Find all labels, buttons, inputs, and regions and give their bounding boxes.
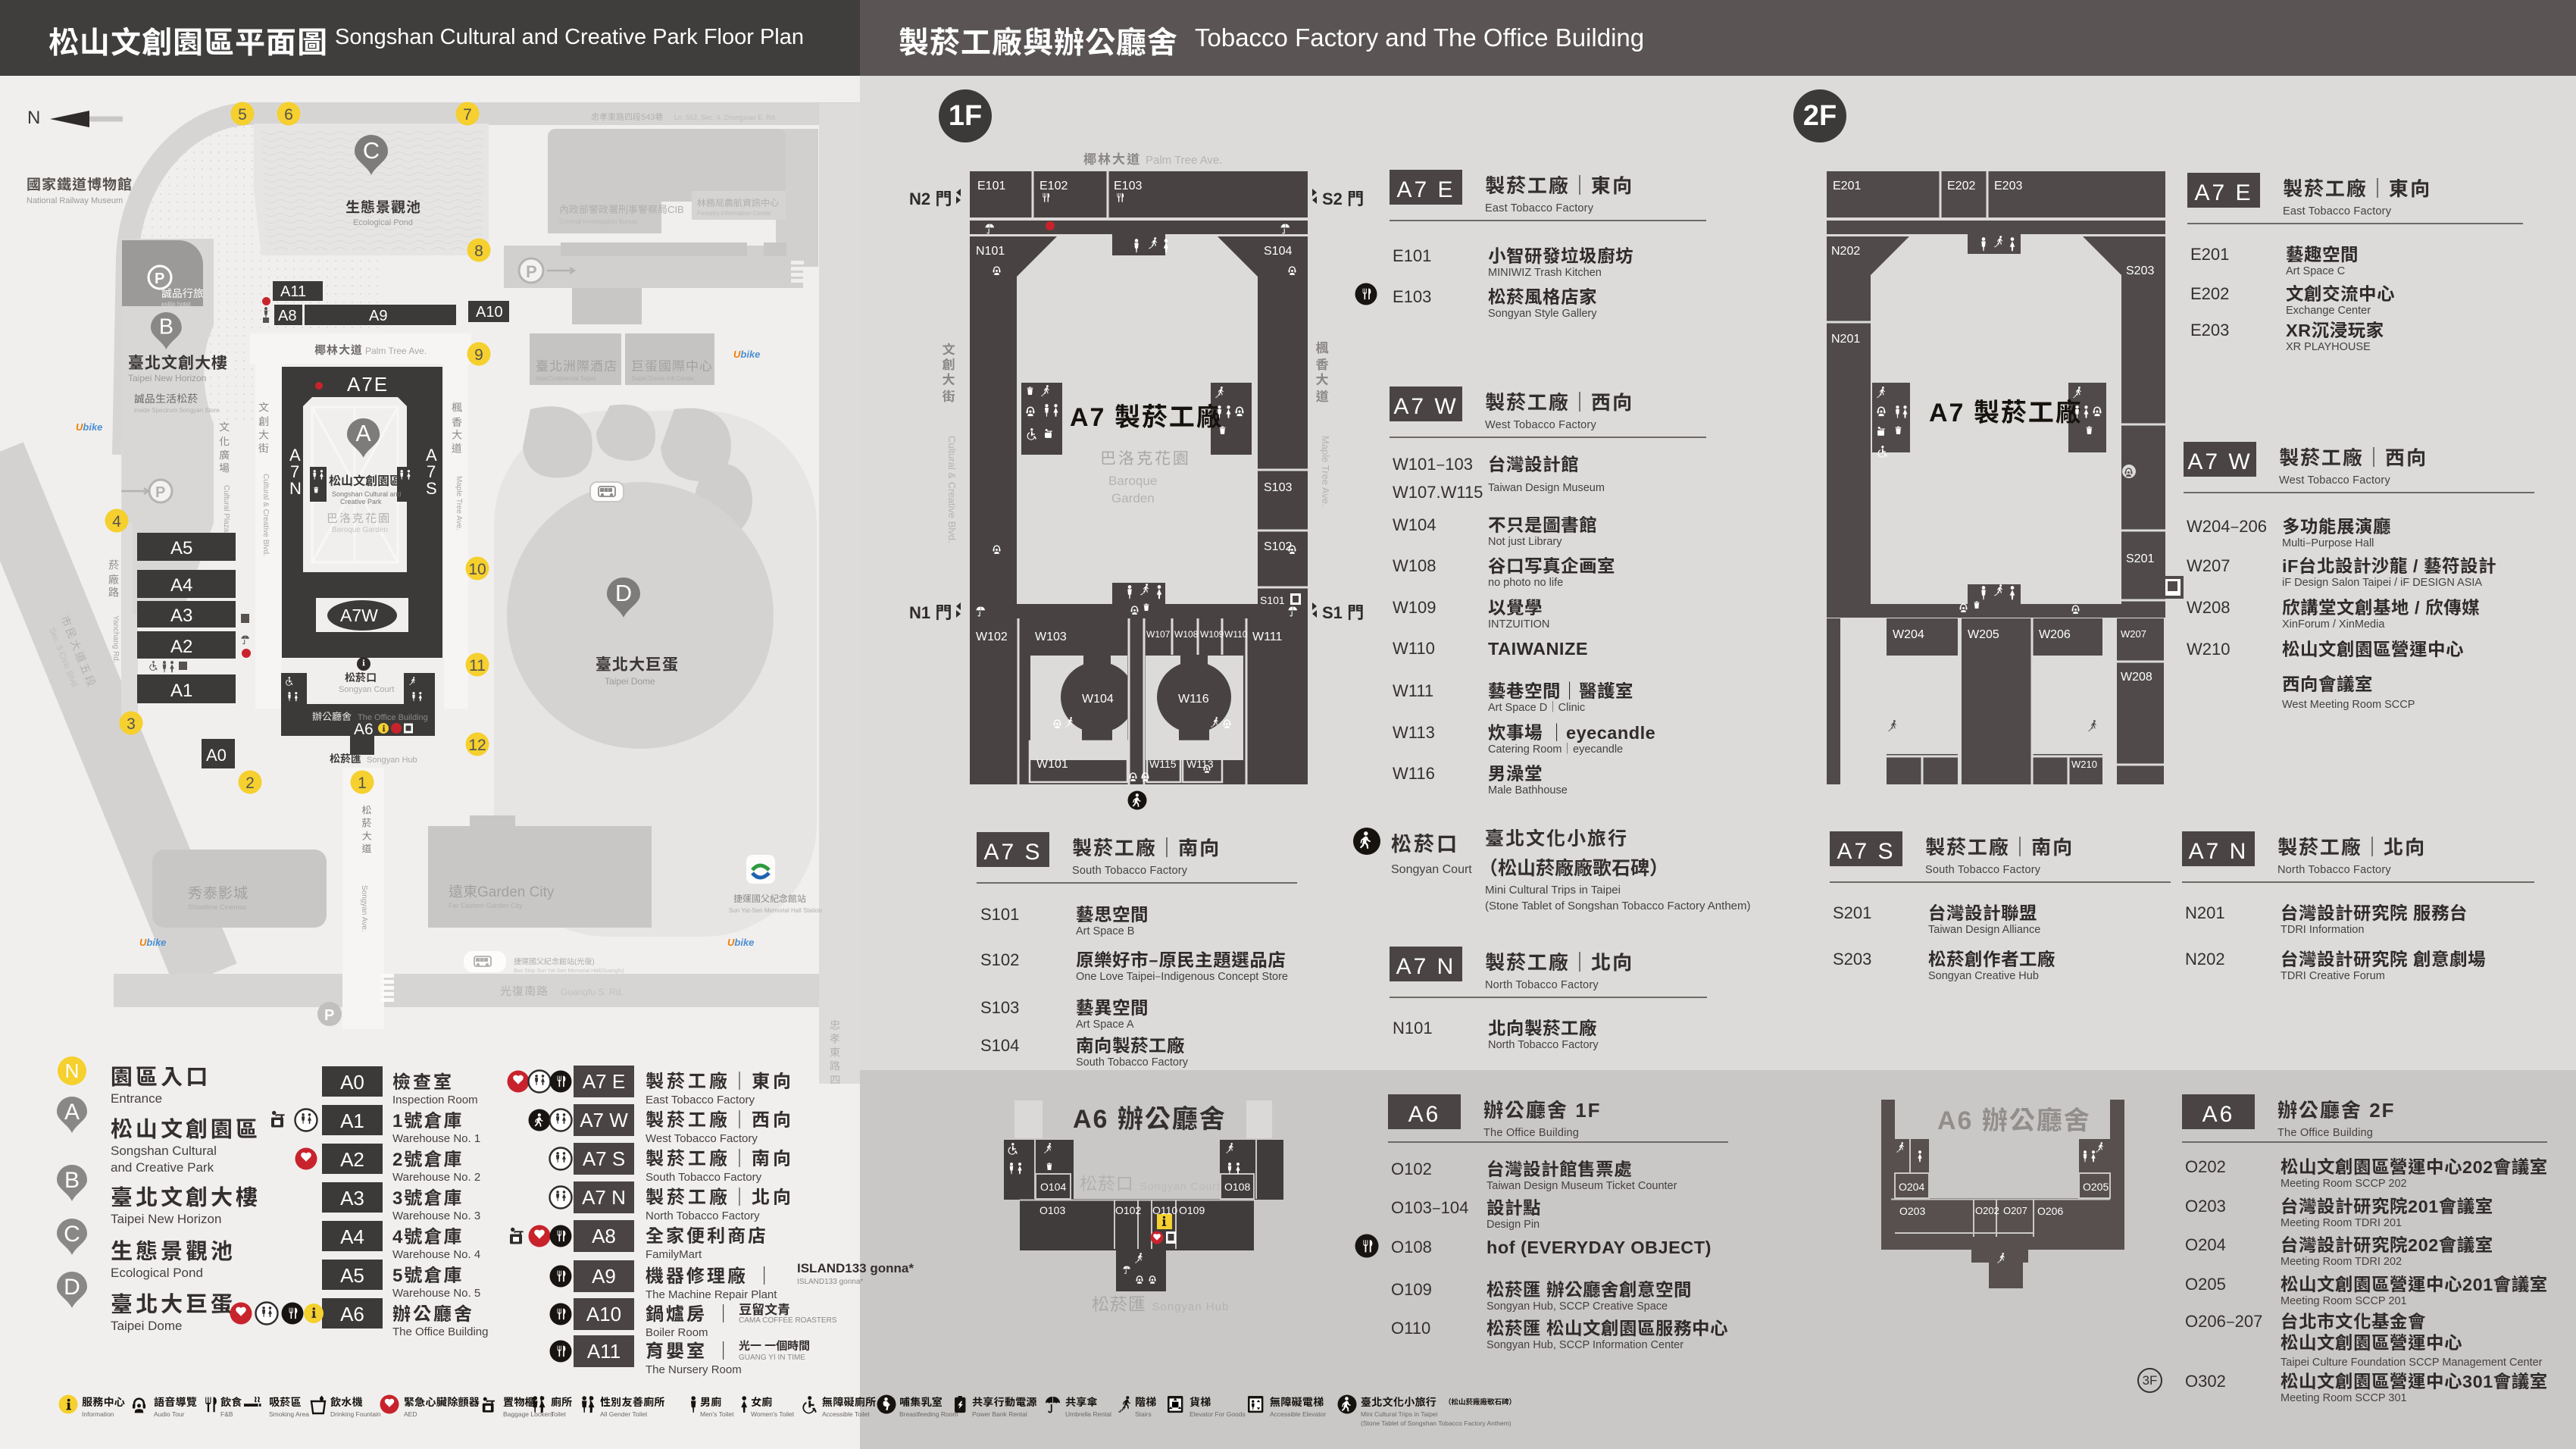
svg-text:Forestry Information Center: Forestry Information Center xyxy=(697,209,771,218)
svg-text:A7 製菸工廠: A7 製菸工廠 xyxy=(1070,396,1224,433)
svg-text:A1: A1 xyxy=(170,681,192,701)
svg-text:W101: W101 xyxy=(1036,758,1068,771)
svg-text:Cultural & Creative Blvd.: Cultural & Creative Blvd. xyxy=(261,474,273,556)
svg-text:Accessible Elevator: Accessible Elevator xyxy=(1270,1410,1326,1419)
svg-text:女廁: 女廁 xyxy=(751,1394,773,1410)
svg-text:C: C xyxy=(363,137,380,164)
svg-text:置物櫃: 置物櫃 xyxy=(503,1394,536,1410)
svg-text:E101: E101 xyxy=(977,180,1005,192)
svg-text:W102: W102 xyxy=(976,631,1008,643)
svg-text:N: N xyxy=(27,108,40,128)
svg-text:廁所: 廁所 xyxy=(551,1394,573,1410)
svg-text:文創大街: 文創大街 xyxy=(256,402,271,456)
svg-text:N101: N101 xyxy=(976,245,1005,258)
svg-text:O205: O205 xyxy=(2083,1181,2109,1193)
svg-text:S1 門: S1 門 xyxy=(1322,599,1364,624)
svg-text:A1: A1 xyxy=(340,1109,364,1132)
svg-text:A9: A9 xyxy=(592,1265,616,1288)
svg-text:貨梯: 貨梯 xyxy=(1190,1394,1211,1410)
svg-text:Far Eastern Garden City: Far Eastern Garden City xyxy=(449,900,523,910)
svg-text:Songyan Ave.: Songyan Ave. xyxy=(360,885,371,932)
svg-text:飲食: 飲食 xyxy=(220,1394,242,1410)
svg-text:A0: A0 xyxy=(206,746,227,765)
svg-text:P: P xyxy=(155,266,164,288)
svg-text:InterContinental Taipei: InterContinental Taipei xyxy=(536,374,596,383)
svg-text:Maple Tree Ave.: Maple Tree Ave. xyxy=(455,476,466,530)
svg-text:誠品生活松菸: 誠品生活松菸 xyxy=(134,391,198,406)
svg-text:5: 5 xyxy=(238,106,247,124)
svg-text:菸廠路: 菸廠路 xyxy=(106,559,121,600)
svg-text:S2 門: S2 門 xyxy=(1322,186,1364,210)
svg-text:Toilet: Toilet xyxy=(551,1410,566,1419)
svg-text:S: S xyxy=(426,479,437,498)
svg-text:W108: W108 xyxy=(1174,629,1199,640)
svg-text:3: 3 xyxy=(127,715,136,733)
svg-text:Women's Toilet: Women's Toilet xyxy=(751,1410,795,1419)
svg-text:B: B xyxy=(64,1168,80,1193)
svg-text:All Gender Toilet: All Gender Toilet xyxy=(600,1410,648,1419)
svg-text:楓香大道: 楓香大道 xyxy=(449,402,464,456)
svg-text:W206: W206 xyxy=(2039,628,2071,641)
svg-text:A4: A4 xyxy=(170,575,192,596)
svg-text:E103: E103 xyxy=(1114,180,1142,192)
svg-text:N: N xyxy=(65,1059,80,1082)
svg-text:捷運國父紀念館站(光復): 捷運國父紀念館站(光復) xyxy=(514,955,595,966)
svg-text:臺北文化小旅行: 臺北文化小旅行 xyxy=(1361,1394,1436,1410)
svg-text:W104: W104 xyxy=(1082,693,1114,706)
svg-text:A7W: A7W xyxy=(340,606,378,625)
svg-text:P: P xyxy=(155,480,165,502)
svg-text:Cultural & Creative Blvd.: Cultural & Creative Blvd. xyxy=(946,436,960,543)
svg-text:W110: W110 xyxy=(1224,629,1248,640)
svg-text:辦公廳舍: 辦公廳舍 xyxy=(312,709,352,723)
svg-text:S102: S102 xyxy=(1264,540,1292,553)
svg-text:Accessible Toilet: Accessible Toilet xyxy=(822,1410,870,1419)
svg-text:10: 10 xyxy=(468,561,486,578)
svg-text:O103: O103 xyxy=(1039,1204,1065,1216)
svg-text:eslite hotel: eslite hotel xyxy=(161,300,190,308)
svg-text:W107: W107 xyxy=(1146,629,1171,640)
svg-text:O108: O108 xyxy=(1224,1181,1250,1193)
svg-text:7: 7 xyxy=(463,106,472,124)
svg-text:無障礙廁所: 無障礙廁所 xyxy=(822,1394,877,1410)
svg-text:Garden: Garden xyxy=(1111,487,1155,506)
svg-text:Palm Tree Ave.: Palm Tree Ave. xyxy=(365,344,427,357)
svg-text:飲水機: 飲水機 xyxy=(330,1394,363,1410)
svg-text:N201: N201 xyxy=(1831,333,1860,346)
svg-text:inside Spectrum Songyan Store: inside Spectrum Songyan Store xyxy=(134,406,220,415)
svg-text:忠孝東路四段543巷: 忠孝東路四段543巷 xyxy=(591,111,663,123)
svg-text:Ubike: Ubike xyxy=(733,346,760,361)
svg-text:臺北洲際酒店: 臺北洲際酒店 xyxy=(536,355,617,374)
svg-text:Ubike: Ubike xyxy=(727,934,754,949)
svg-text:A6 辦公廳舍: A6 辦公廳舍 xyxy=(1937,1100,2091,1137)
svg-text:8: 8 xyxy=(474,243,483,260)
svg-text:6: 6 xyxy=(284,106,293,124)
svg-text:O109: O109 xyxy=(1179,1204,1205,1216)
svg-text:緊急心臟除顫器: 緊急心臟除顫器 xyxy=(404,1394,480,1410)
svg-text:N2 門: N2 門 xyxy=(909,186,952,210)
svg-text:A6 辦公廳舍: A6 辦公廳舍 xyxy=(1073,1098,1227,1135)
svg-text:Criminal Investigation Bureau: Criminal Investigation Bureau xyxy=(559,218,639,226)
svg-text:B: B xyxy=(159,315,174,340)
svg-text:松菸大道: 松菸大道 xyxy=(360,805,374,856)
svg-text:Breastfeeding Room: Breastfeeding Room xyxy=(899,1410,958,1419)
svg-text:巴洛克花園: 巴洛克花園 xyxy=(1100,446,1191,469)
svg-text:S104: S104 xyxy=(1264,245,1292,258)
svg-text:C: C xyxy=(64,1222,80,1247)
svg-text:A7 W: A7 W xyxy=(580,1109,628,1131)
svg-text:Power Bank Rental: Power Bank Rental xyxy=(972,1410,1027,1419)
svg-text:O104: O104 xyxy=(1040,1181,1066,1193)
svg-text:N1 門: N1 門 xyxy=(909,599,952,624)
svg-text:O202: O202 xyxy=(1975,1205,1999,1216)
svg-text:光復南路: 光復南路 xyxy=(500,983,549,999)
svg-text:A0: A0 xyxy=(340,1071,364,1094)
svg-text:11: 11 xyxy=(469,657,486,674)
svg-text:Mini Cultural Trips in Taipei: Mini Cultural Trips in Taipei xyxy=(1361,1410,1438,1419)
svg-text:內政部警政署刑事警察局CIB: 內政部警政署刑事警察局CIB xyxy=(559,202,684,216)
svg-text:Men's Toilet: Men's Toilet xyxy=(700,1410,734,1419)
svg-text:W207: W207 xyxy=(2121,628,2146,640)
svg-text:S103: S103 xyxy=(1264,481,1292,494)
svg-text:O204: O204 xyxy=(1899,1181,1924,1193)
svg-text:誠品行旅: 誠品行旅 xyxy=(161,286,204,301)
svg-text:O207: O207 xyxy=(2003,1205,2027,1216)
svg-text:Maple Tree Ave.: Maple Tree Ave. xyxy=(1319,436,1333,507)
svg-text:2: 2 xyxy=(245,775,255,792)
svg-text:A7E: A7E xyxy=(347,373,389,396)
svg-text:A2: A2 xyxy=(340,1148,364,1171)
svg-text:A8: A8 xyxy=(278,308,296,324)
svg-text:E201: E201 xyxy=(1833,180,1861,192)
svg-text:E202: E202 xyxy=(1947,180,1975,192)
svg-text:語音導覽: 語音導覽 xyxy=(154,1394,198,1410)
svg-text:楓香大道: 楓香大道 xyxy=(1313,341,1332,405)
svg-text:臺北文創大樓: 臺北文創大樓 xyxy=(128,351,228,374)
svg-text:A11: A11 xyxy=(280,283,306,300)
svg-text:Taipei Dome: Taipei Dome xyxy=(605,674,655,687)
svg-text:Bus Stop Sun Yat-Sen Memorial: Bus Stop Sun Yat-Sen Memorial Hall(Guang… xyxy=(514,967,624,975)
svg-text:松菸匯 Songyan Hub: 松菸匯 Songyan Hub xyxy=(1092,1290,1229,1316)
svg-text:A8: A8 xyxy=(592,1225,616,1247)
svg-text:W103: W103 xyxy=(1035,631,1067,643)
svg-text:Yanchang Rd.: Yanchang Rd. xyxy=(111,615,123,663)
svg-text:P: P xyxy=(526,258,537,283)
svg-text:O206: O206 xyxy=(2037,1205,2063,1217)
svg-text:A10: A10 xyxy=(586,1303,621,1325)
svg-text:Sun Yat-Sen Memorial Hall Stat: Sun Yat-Sen Memorial Hall Station xyxy=(729,906,822,915)
svg-text:(Stone Tablet of Songshan Toba: (Stone Tablet of Songshan Tobacco Factor… xyxy=(1361,1419,1512,1428)
svg-text:階梯: 階梯 xyxy=(1135,1394,1157,1410)
svg-text:文創大街: 文創大街 xyxy=(939,341,958,405)
svg-text:椰林大道: 椰林大道 xyxy=(314,342,363,358)
svg-text:共享行動電源: 共享行動電源 xyxy=(972,1394,1037,1410)
svg-text:松菸匯: 松菸匯 xyxy=(330,751,361,766)
svg-text:W210: W210 xyxy=(2071,759,2097,770)
svg-text:A10: A10 xyxy=(476,304,503,321)
svg-text:A5: A5 xyxy=(170,538,192,559)
svg-text:吸菸區: 吸菸區 xyxy=(269,1394,302,1410)
svg-text:A6: A6 xyxy=(354,721,374,738)
svg-text:Elevator For Goods: Elevator For Goods xyxy=(1190,1410,1246,1419)
svg-text:Showtime Cinemas: Showtime Cinemas xyxy=(188,902,247,912)
svg-text:Baroque Garden: Baroque Garden xyxy=(332,523,388,534)
svg-text:1: 1 xyxy=(358,775,367,792)
svg-text:巨蛋國際中心: 巨蛋國際中心 xyxy=(631,355,713,374)
svg-text:Ubike: Ubike xyxy=(139,934,166,949)
svg-text:林務局農航資訊中心: 林務局農航資訊中心 xyxy=(697,196,780,209)
svg-text:A3: A3 xyxy=(340,1187,364,1210)
svg-text:S203: S203 xyxy=(2126,264,2154,277)
svg-text:臺北大巨蛋: 臺北大巨蛋 xyxy=(596,653,679,675)
svg-text:Smoking Area: Smoking Area xyxy=(269,1410,309,1419)
svg-text:P: P xyxy=(324,1003,334,1025)
svg-text:4: 4 xyxy=(112,513,121,530)
svg-text:忠孝東路四段: 忠孝東路四段 xyxy=(827,1019,843,1084)
svg-text:N: N xyxy=(289,479,302,498)
svg-text:性別友善廁所: 性別友善廁所 xyxy=(600,1394,665,1410)
svg-text:A5: A5 xyxy=(340,1264,364,1287)
svg-text:12: 12 xyxy=(468,737,486,754)
svg-text:共享傘: 共享傘 xyxy=(1065,1394,1098,1410)
svg-text:E102: E102 xyxy=(1039,180,1068,192)
svg-text:男廁: 男廁 xyxy=(700,1394,722,1410)
svg-text:A6: A6 xyxy=(340,1303,364,1325)
svg-text:Songyan Court: Songyan Court xyxy=(339,683,394,695)
svg-text:D: D xyxy=(615,580,632,606)
svg-text:S101: S101 xyxy=(1260,594,1285,606)
svg-text:Cultural Plaza: Cultural Plaza xyxy=(222,485,233,533)
svg-text:W208: W208 xyxy=(2121,671,2152,684)
svg-text:W116: W116 xyxy=(1178,693,1209,706)
svg-text:Creative Park: Creative Park xyxy=(340,496,382,506)
svg-text:W111: W111 xyxy=(1252,631,1283,643)
svg-text:A7 N: A7 N xyxy=(582,1186,626,1209)
svg-text:Ubike: Ubike xyxy=(76,419,102,433)
svg-text:A9: A9 xyxy=(369,308,387,324)
svg-text:Drinking Fountain: Drinking Fountain xyxy=(330,1410,381,1419)
svg-text:Umbrella Rental: Umbrella Rental xyxy=(1065,1410,1111,1419)
svg-text:F&B: F&B xyxy=(220,1410,233,1419)
svg-text:Guangfu S. Rd.: Guangfu S. Rd. xyxy=(561,985,624,998)
svg-text:生態景觀池: 生態景觀池 xyxy=(345,196,421,217)
svg-text:捷運國父紀念館站: 捷運國父紀念館站 xyxy=(733,892,806,905)
svg-text:A3: A3 xyxy=(170,606,192,626)
svg-text:A11: A11 xyxy=(587,1340,621,1363)
svg-text:松山文創園區: 松山文創園區 xyxy=(329,471,402,489)
svg-text:椰林大道: 椰林大道 xyxy=(1083,149,1141,167)
svg-text:A2: A2 xyxy=(170,637,192,657)
svg-text:無障礙電梯: 無障礙電梯 xyxy=(1270,1394,1324,1410)
svg-text:A: A xyxy=(64,1100,80,1125)
svg-text:（松山菸廠廠歌石碑）: （松山菸廠廠歌石碑） xyxy=(1444,1396,1516,1407)
svg-text:秀泰影城: 秀泰影城 xyxy=(188,882,249,903)
svg-text:A7 E: A7 E xyxy=(583,1070,625,1093)
svg-text:AED: AED xyxy=(404,1410,417,1419)
svg-text:Taipei New Horizon: Taipei New Horizon xyxy=(128,371,206,384)
svg-text:國家鐵道博物館: 國家鐵道博物館 xyxy=(27,174,133,194)
svg-text:W204: W204 xyxy=(1893,628,1924,641)
svg-text:A7 製菸工廠: A7 製菸工廠 xyxy=(1929,392,2083,429)
svg-text:Stairs: Stairs xyxy=(1135,1410,1152,1419)
svg-text:A4: A4 xyxy=(340,1225,364,1248)
svg-text:National Railway Museum: National Railway Museum xyxy=(27,194,123,206)
svg-text:文化廣場: 文化廣場 xyxy=(217,421,232,476)
svg-text:N202: N202 xyxy=(1831,245,1860,258)
svg-text:S201: S201 xyxy=(2126,552,2154,565)
svg-text:Taipei Dome Intl Center: Taipei Dome Intl Center xyxy=(631,374,695,383)
svg-text:Baroque: Baroque xyxy=(1108,470,1157,489)
svg-text:Ln. 553, Sec. 4, Zhongxiao E.: Ln. 553, Sec. 4, Zhongxiao E. Rd. xyxy=(674,112,777,122)
svg-text:A: A xyxy=(356,421,372,446)
svg-text:W115: W115 xyxy=(1149,758,1177,770)
svg-text:Palm Tree Ave.: Palm Tree Ave. xyxy=(1146,152,1222,167)
svg-text:W205: W205 xyxy=(1968,628,1999,641)
svg-text:D: D xyxy=(64,1275,80,1300)
svg-text:Ecological Pond: Ecological Pond xyxy=(353,216,413,228)
svg-text:服務中心: 服務中心 xyxy=(82,1394,125,1410)
svg-text:O102: O102 xyxy=(1115,1204,1141,1216)
svg-text:E203: E203 xyxy=(1994,180,2022,192)
svg-text:W109: W109 xyxy=(1200,629,1224,640)
svg-text:Songyan Hub: Songyan Hub xyxy=(367,753,417,765)
svg-text:Audio Tour: Audio Tour xyxy=(154,1410,185,1419)
svg-text:Baggage Lockers: Baggage Lockers xyxy=(503,1410,553,1419)
svg-text:O203: O203 xyxy=(1899,1205,1925,1217)
svg-text:9: 9 xyxy=(474,346,483,364)
svg-text:松菸口 Songyan Court: 松菸口 Songyan Court xyxy=(1080,1169,1221,1195)
svg-text:哺集乳室: 哺集乳室 xyxy=(899,1394,943,1410)
svg-text:A7 S: A7 S xyxy=(583,1147,625,1170)
svg-text:Information: Information xyxy=(82,1410,114,1419)
svg-text:遠東Garden City: 遠東Garden City xyxy=(449,881,555,901)
